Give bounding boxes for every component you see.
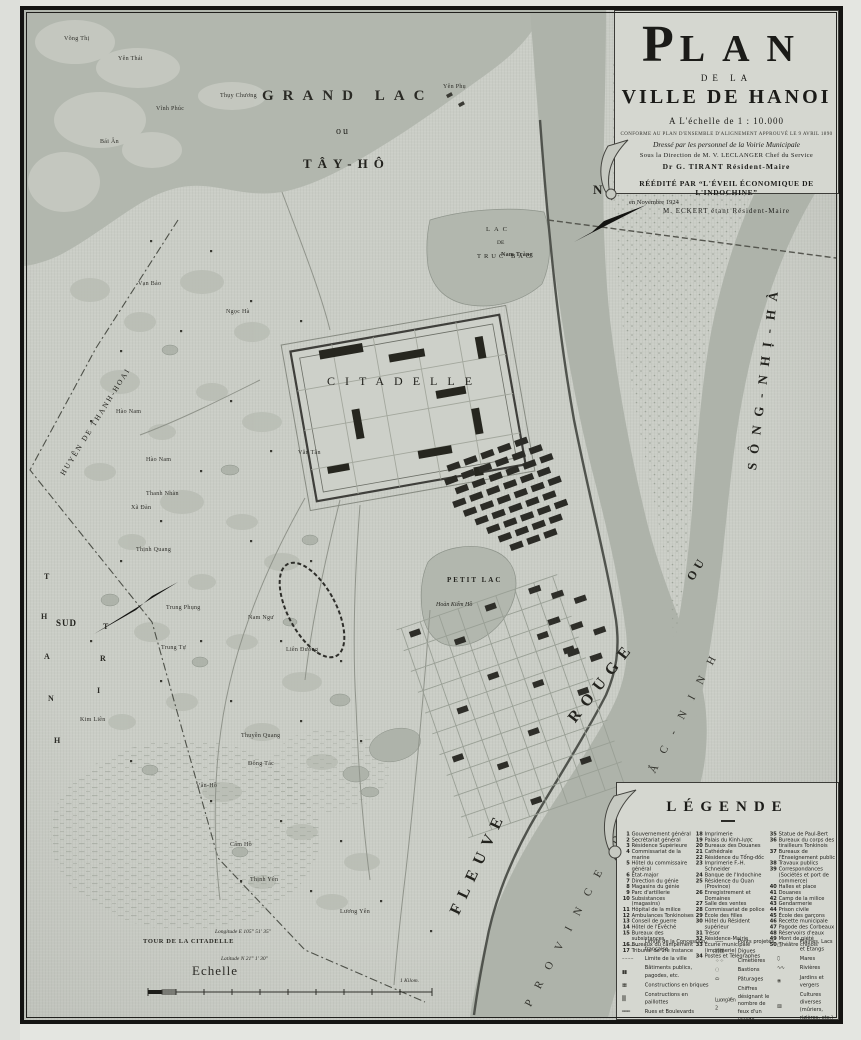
scale-bar (148, 988, 432, 996)
concession-blocks (528, 569, 614, 674)
legend-symbol-glyph: ▮▮ (622, 968, 642, 976)
legend-item-text: Bureaux de l'Enseignement public (779, 849, 841, 861)
legend-item: 10Subsistances (magasins) (622, 896, 694, 908)
legend-item: 36Bureaux du corps des tirailleurs Tonki… (769, 838, 841, 850)
legend-symbol-glyph: ⬭ (715, 976, 735, 984)
legend-symbol-row: ⬭Pâturages (715, 976, 778, 984)
legend-item-text: Imprimerie F.-H. Schneider (705, 861, 767, 873)
legend-title: LÉGENDE (617, 799, 838, 816)
legend-symbol-text: Bâtiments publics, pagodes, etc. (645, 965, 712, 980)
legend-symbol-text: Plaines, Lacs et Étangs (800, 938, 837, 953)
legend-symbol-row: ⁘ ⁘Cimetières (715, 957, 778, 965)
village-lien-duong: Liên Đường (286, 647, 318, 653)
village-hao-nam-1: Hào Nam (116, 409, 141, 415)
village-nam-trang: Nam Tràng (501, 252, 533, 258)
legend-symbol-glyph: ∿∿ (777, 965, 797, 973)
legend-column-3: 35Statue de Paul-Bert36Bureaux du corps … (769, 832, 841, 948)
legend-symbol-row: ▢Plaines, Lacs et Étangs (777, 938, 837, 953)
legend-symbol-glyph: ▨ (777, 1003, 797, 1011)
thanh-letter-5: H (54, 736, 60, 745)
legend-symbol-glyph: – – – – (622, 955, 642, 963)
legend-symbol-glyph: ▢ (777, 942, 797, 950)
legend-symbol-row: ▨Cultures diverses (mûriers, rizières, e… (777, 991, 837, 1022)
legend-item-text: Résidence du Quan (Province) (705, 879, 767, 891)
village-ngoc-ha: Ngọc Hà (226, 309, 250, 315)
title-rest: LAN (680, 28, 811, 70)
legend-symbol-text: Mares (800, 955, 815, 963)
title-tirant: Dr G. TIRANT Résident-Maire (615, 162, 838, 171)
echelle-label: Echelle (192, 963, 238, 979)
legend-item: 26Enregistrement et Domaines (695, 890, 767, 902)
legend-symbol-text: Constructions en paillottes (645, 991, 712, 1006)
grand-lac-label: GRAND LAC (262, 88, 433, 105)
legend-symbol-text: Rues et Boulevards (645, 1008, 694, 1016)
village-nam-ngu: Nam Ngư (248, 615, 274, 621)
legend-symbol-text: Jardins et vergers (800, 974, 837, 989)
legend-symbols: —··—··—Limite de la Concession française… (617, 938, 838, 1034)
legend-symbol-row: ▒Constructions en paillottes (622, 991, 712, 1006)
village-cam-ho: Cẩm Hồ (230, 842, 252, 848)
tri-letter-1: T (103, 622, 108, 631)
legend-symbol-glyph: ⟫⟫⟫⟫ (715, 947, 735, 955)
legend-symbol-text: Cimetières (738, 957, 765, 965)
legend-item-text: Hôtel du Résident supérieur (705, 919, 767, 931)
legend-item-number: 10 (622, 896, 630, 908)
legend-symbol-row: ⟫⟫⟫⟫Digues (715, 947, 778, 955)
village-vinh-phuc: Vĩnh Phúc (156, 106, 184, 112)
village-vong-thi: Võng Thị (64, 36, 89, 42)
title-initial: P (642, 16, 680, 73)
thanh-letter-3: A (44, 652, 50, 661)
tay-ho-label: TÂY-HÔ (303, 156, 390, 172)
tri-letter-3: I (97, 686, 100, 695)
marsh-texture-2 (270, 728, 390, 812)
legend-symbol-row: ∿∿Rivières (777, 965, 837, 973)
legend-symbol-glyph: ◌ (715, 966, 735, 974)
title-dresse: Dressé par les personnel de la Voirie Mu… (615, 140, 838, 149)
legend-symbols-column-2: ╌╌╌Ponts projetés⟫⟫⟫⟫Digues⁘ ⁘Cimetières… (715, 938, 778, 1025)
village-thuyen-quang: Thuyền Quang (241, 733, 280, 739)
legend-symbol-glyph: Luong-Yên 2 (715, 997, 735, 1012)
legend-symbol-row: ═══Rues et Boulevards (622, 1008, 712, 1016)
map-title: PLAN (615, 19, 838, 71)
title-scale: A L'échelle de 1 : 10.000 (615, 116, 838, 126)
latitude-label: Latitude N 21° 1' 30″ (221, 956, 268, 962)
legend-symbol-row: ▦Constructions en briques (622, 982, 712, 990)
village-hao-nam-2: Hào Nam (146, 457, 171, 463)
legend-item: 30Hôtel du Résident supérieur (695, 919, 767, 931)
legend-symbol-row: ▮▮Bâtiments publics, pagodes, etc. (622, 965, 712, 980)
legend-symbol-glyph: —··—··— (622, 942, 642, 950)
legend-symbol-glyph: ⬯ (777, 955, 797, 963)
legend-symbol-row: – – – –Limite de la ville (622, 955, 712, 963)
legend-symbol-text: Limite de la Concession française (645, 938, 712, 953)
legend-symbol-row: ◌Bastions (715, 966, 778, 974)
legend-symbol-text: Limite de la ville (645, 955, 687, 963)
legend-symbol-row: —··—··—Limite de la Concession française (622, 938, 712, 953)
legend-item-text: Bureaux du corps des tirailleurs Tonkino… (779, 838, 841, 850)
legend-item: 25Résidence du Quan (Province) (695, 879, 767, 891)
village-thinh-yen: Thịnh Yên (250, 877, 278, 883)
legend-symbol-text: Constructions en briques (645, 982, 709, 990)
legend-symbol-text: Chiffres désignant le nombre de feux d'u… (738, 985, 778, 1023)
legend-panel: LÉGENDE 1Gouvernement général2Secrétaria… (616, 782, 839, 1020)
thanh-letter-1: T (44, 572, 49, 581)
legend-symbol-text: Pâturages (738, 976, 763, 984)
legend-item-number: 23 (695, 861, 703, 873)
legend-symbol-glyph: ╌╌╌ (715, 938, 735, 946)
legend-symbols-column-3: ▢Plaines, Lacs et Étangs⬯Mares∿∿Rivières… (777, 938, 837, 1024)
petit-lac-label: PETIT LAC (447, 576, 502, 584)
kilometre-label: 1 Kilom. (400, 978, 419, 984)
legend-symbol-glyph: ⁘ ⁘ (715, 957, 735, 965)
legend-item: 39Correspondances (Sociétés et port de c… (769, 867, 841, 884)
legend-title-rule (721, 820, 735, 822)
legend-item-number: 36 (769, 838, 777, 850)
legend-symbol-row: Luong-Yên 2Chiffres désignant le nombre … (715, 985, 778, 1023)
village-xa-dan: Xã Đàn (131, 505, 151, 511)
legend-item-text: Subsistances (magasins) (632, 896, 694, 908)
citadelle-label: CITADELLE (327, 374, 482, 389)
village-luong-yen: Lương Yên (340, 909, 370, 915)
village-thanh-nhan: Thanh Nhàn (146, 491, 179, 497)
village-dong-tac: Đông Tác (248, 761, 274, 767)
cartouche-paper-curl (596, 138, 632, 204)
legend-symbol-row: ❀Jardins et vergers (777, 974, 837, 989)
title-conforme: CONFORME AU PLAN D'ENSEMBLE D'ALIGNEMENT… (615, 132, 838, 137)
village-trung-tu: Trung Tự (161, 645, 186, 651)
legend-symbol-text: Rivières (800, 965, 820, 973)
legend-symbol-glyph: ▒ (622, 995, 642, 1003)
tour-de-la-citadelle-label: TOUR DE LA CITADELLE (143, 938, 234, 945)
legend-symbol-text: Cultures diverses (mûriers, rizières, et… (800, 991, 837, 1022)
legend-item-number: 26 (695, 890, 703, 902)
village-kim-lien: Kim Liên (80, 717, 106, 723)
compass-south-label: SUD (56, 618, 77, 628)
title-eckert: M. ECKERT étant Résident-Maire (615, 207, 838, 215)
legend-symbol-text: Ponts projetés (738, 938, 774, 946)
legend-item-number: 25 (695, 879, 703, 891)
title-reedite: RÉÉDITÉ PAR “L'ÉVEIL ÉCONOMIQUE DE L'IND… (615, 179, 838, 197)
tri-letter-2: R (100, 654, 106, 663)
longitude-label: Longitude E 105° 51' 35″ (215, 929, 271, 935)
village-trung-phung: Trung Phụng (166, 605, 201, 611)
village-thuy-chuong: Thụy Chương (220, 93, 257, 99)
legend-item-number: 37 (769, 849, 777, 861)
thanh-letter-2: H (41, 612, 47, 621)
title-direction: Sous la Direction de M. V. LECLANGER Che… (615, 152, 838, 159)
title-date: en Novembre 1924 (615, 199, 838, 206)
legend-columns: 1Gouvernement général2Secrétariat généra… (617, 832, 838, 934)
legend-item-text: Enregistrement et Domaines (705, 890, 767, 902)
grand-lac-ou-label: ou (336, 126, 350, 137)
legend-symbol-glyph: ═══ (622, 1008, 642, 1016)
village-yen-thai: Yên Thái (118, 56, 143, 62)
petit-lac-water (421, 546, 516, 646)
legend-symbols-column-1: —··—··—Limite de la Concession française… (622, 938, 712, 1018)
legend-symbol-glyph: ❀ (777, 978, 797, 986)
legend-symbol-text: Digues (738, 947, 756, 955)
legend-item: 23Imprimerie F.-H. Schneider (695, 861, 767, 873)
legend-symbol-row: ⬯Mares (777, 955, 837, 963)
village-yen-phu: Yên Phụ (443, 84, 466, 90)
legend-item-text: Hôtel du commissaire général (632, 861, 694, 873)
title-ville-de-hanoi: VILLE DE HANOI (615, 86, 838, 109)
legend-item-number: 30 (695, 919, 703, 931)
legend-paper-curl (600, 786, 640, 864)
title-de-la: DE LA (615, 73, 838, 83)
legend-symbol-text: Bastions (738, 966, 760, 974)
legend-symbol-row: ╌╌╌Ponts projetés (715, 938, 778, 946)
title-cartouche: PLAN DE LA VILLE DE HANOI A L'échelle de… (614, 10, 839, 194)
village-thinh-quang: Thịnh Quang (136, 547, 171, 553)
village-van-ho: Vân-Hồ (196, 783, 217, 789)
truc-bac-label-1: LAC (486, 226, 511, 233)
thanh-letter-4: N (48, 694, 54, 703)
truc-bac-label-2: DE (497, 240, 504, 246)
village-van-tan: Văn Tân (298, 450, 321, 456)
village-bai-an: Bái Ân (100, 139, 119, 145)
legend-symbol-glyph: ▦ (622, 982, 642, 990)
legend-item-number: 39 (769, 867, 777, 884)
photographed-map: GRAND LAC ou TÂY-HÔ LAC DE TRUC BAC PETI… (0, 0, 861, 1040)
village-van-bao: Vạn Bảo (138, 281, 161, 287)
hoan-kiem-label: Hoàn Kiếm Hồ (436, 602, 472, 608)
legend-item-text: Correspondances (Sociétés et port de com… (779, 867, 841, 884)
legend-item: 37Bureaux de l'Enseignement public (769, 849, 841, 861)
